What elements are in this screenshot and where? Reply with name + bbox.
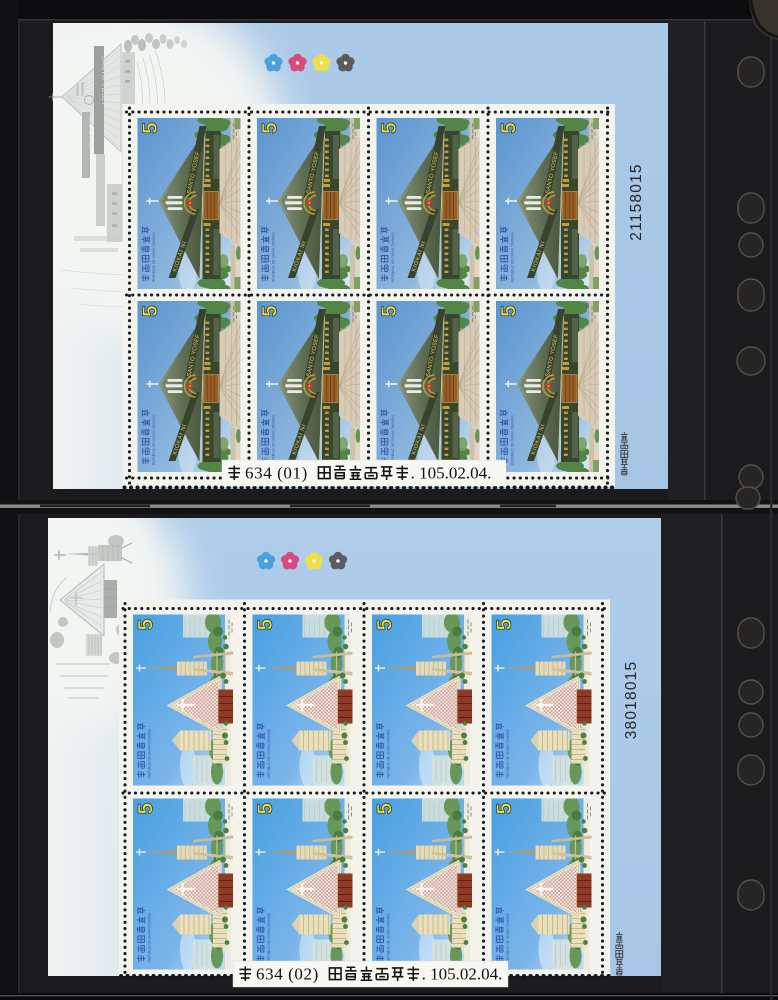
svg-text:634 (01): 634 (01) [245, 464, 308, 483]
svg-text:SANTO YOSEF: SANTO YOSEF [100, 56, 106, 107]
svg-text:38018015: 38018015 [623, 661, 640, 740]
svg-text:. 105.02.04.: . 105.02.04. [422, 965, 503, 984]
svg-text:634 (02): 634 (02) [256, 965, 319, 984]
svg-text:21158015: 21158015 [628, 163, 645, 240]
svg-text:KIOKAI NI: KIOKAI NI [87, 117, 93, 150]
svg-text:. 105.02.04.: . 105.02.04. [411, 464, 492, 483]
